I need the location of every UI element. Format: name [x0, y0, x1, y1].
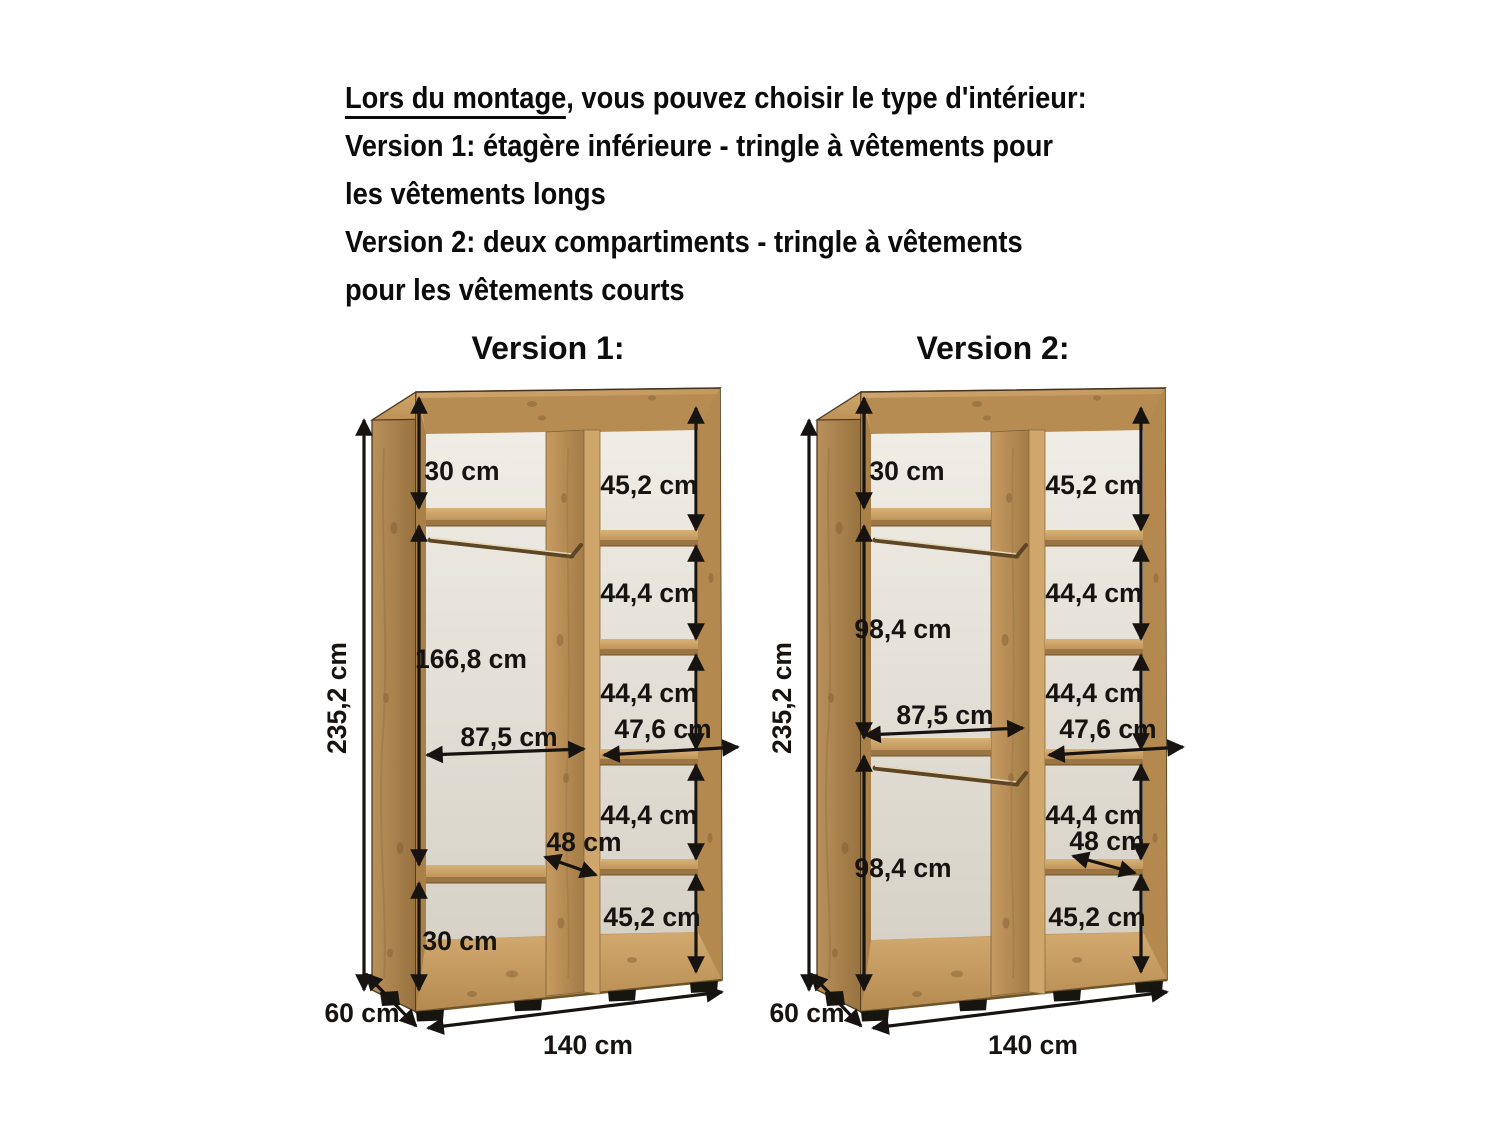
left-shelf-1-top [871, 508, 991, 520]
foot-1 [861, 1010, 889, 1022]
left-shelf-2-top [871, 738, 991, 750]
wood-knot [709, 573, 714, 583]
label-height: 235,2 cm [767, 642, 797, 754]
label-right-section-2: 44,4 cm [600, 578, 697, 608]
header-line-4: Version 2: deux compartiments - tringle … [345, 218, 1087, 266]
label-right-section-3: 44,4 cm [1045, 678, 1142, 708]
left-shelf-1-edge [426, 520, 546, 526]
right-shelf-2-top [1045, 639, 1143, 649]
right-shelf-4-top [600, 859, 698, 869]
ceiling-panel [420, 394, 718, 434]
ceiling-panel [865, 394, 1163, 434]
wardrobe-diagram-version1: 235,2 cm30 cm166,8 cm30 cm87,5 cm48 cm45… [332, 378, 752, 1078]
side-panel [372, 392, 416, 1012]
center-divider-side [991, 430, 1029, 996]
header-line-3: les vêtements longs [345, 170, 1087, 218]
foot-4 [690, 981, 718, 993]
wood-knot [506, 971, 518, 978]
label-width: 140 cm [543, 1030, 633, 1060]
label-right-shelf-depth: 47,6 cm [1059, 714, 1156, 744]
center-divider-side [546, 430, 584, 996]
right-shelf-2-edge [1045, 649, 1143, 655]
wood-knot [1153, 833, 1158, 843]
right-shelf-4-edge [600, 869, 698, 875]
right-shelf-1-top [600, 530, 698, 540]
label-right-section-5: 45,2 cm [603, 902, 700, 932]
right-shelf-3-edge [1045, 759, 1143, 765]
label-right-section-2: 44,4 cm [1045, 578, 1142, 608]
foot-2 [514, 999, 542, 1011]
wood-knot [558, 918, 565, 929]
version1-title: Version 1: [453, 330, 643, 367]
wood-knot [527, 401, 537, 407]
wood-knot [387, 949, 393, 958]
right-shelf-2-top [600, 639, 698, 649]
label-right-section-1: 45,2 cm [1045, 470, 1142, 500]
label-lower-section: 98,4 cm [854, 853, 951, 883]
wood-knot [397, 842, 404, 854]
label-bottom-section: 30 cm [422, 926, 497, 956]
label-top-section: 30 cm [869, 456, 944, 486]
wood-knot [912, 991, 922, 997]
foot-3 [608, 989, 636, 1001]
left-shelf-1-edge [871, 520, 991, 526]
left-shelf-1-top [426, 508, 546, 520]
wardrobe-diagram-version2: 235,2 cm30 cm98,4 cm98,4 cm87,5 cm48 cm4… [777, 378, 1197, 1078]
foot-1 [416, 1010, 444, 1022]
header-line-2: Version 1: étagère inférieure - tringle … [345, 122, 1087, 170]
wood-knot [708, 833, 713, 843]
wood-knot [627, 957, 637, 963]
header-line-5: pour les vêtements courts [345, 266, 1087, 314]
wood-knot [832, 949, 838, 958]
label-upper-section: 98,4 cm [854, 614, 951, 644]
label-right-section-4: 44,4 cm [1045, 800, 1142, 830]
label-right-section-5: 45,2 cm [1048, 902, 1145, 932]
label-right-shelf-depth: 47,6 cm [614, 714, 711, 744]
label-height: 235,2 cm [322, 642, 352, 754]
version2-title: Version 2: [898, 330, 1088, 367]
wood-knot [983, 416, 991, 421]
right-shelf-2-edge [600, 649, 698, 655]
foot-2 [959, 999, 987, 1011]
left-shelf-2-edge [426, 877, 546, 883]
label-shelf-depth: 48 cm [1069, 826, 1144, 856]
wood-knot [836, 522, 843, 534]
wood-knot [557, 634, 564, 646]
wood-knot [1072, 957, 1082, 963]
center-divider-front-edge [584, 430, 600, 994]
wood-knot [1003, 918, 1010, 929]
label-right-section-3: 44,4 cm [600, 678, 697, 708]
right-shelf-1-top [1045, 530, 1143, 540]
wood-knot [648, 396, 656, 401]
label-top-section: 30 cm [424, 456, 499, 486]
wood-knot [1093, 396, 1101, 401]
page: Lors du montage, vous pouvez choisir le … [0, 0, 1500, 1125]
left-shelf-2-edge [871, 750, 991, 756]
center-divider-front-edge [1029, 430, 1045, 994]
side-panel [817, 392, 861, 1012]
label-right-section-1: 45,2 cm [600, 470, 697, 500]
wood-knot [842, 842, 849, 854]
label-width: 140 cm [988, 1030, 1078, 1060]
wood-knot [1006, 493, 1012, 503]
right-shelf-3-edge [600, 759, 698, 765]
label-interior-width: 87,5 cm [460, 722, 557, 752]
label-right-section-4: 44,4 cm [600, 800, 697, 830]
header-line1-rest: , vous pouvez choisir le type d'intérieu… [566, 80, 1086, 115]
label-depth: 60 cm [769, 998, 844, 1028]
wood-knot [1154, 573, 1159, 583]
right-wall-inner [1143, 388, 1167, 980]
right-shelf-1-edge [600, 540, 698, 546]
left-shelf-2-top [426, 865, 546, 877]
header-line1-underlined: Lors du montage [345, 80, 566, 119]
label-main-section: 166,8 cm [415, 644, 527, 674]
wood-knot [561, 493, 567, 503]
header-text: Lors du montage, vous pouvez choisir le … [345, 74, 1087, 314]
label-interior-width: 87,5 cm [896, 700, 993, 730]
foot-4 [1135, 981, 1163, 993]
wood-knot [1002, 634, 1009, 646]
right-shelf-1-edge [1045, 540, 1143, 546]
label-depth: 60 cm [324, 998, 399, 1028]
wood-knot [467, 991, 477, 997]
wood-knot [951, 971, 963, 978]
right-wall-inner [698, 388, 722, 980]
header-line-1: Lors du montage, vous pouvez choisir le … [345, 74, 1087, 122]
foot-3 [1053, 989, 1081, 1001]
wood-knot [391, 522, 398, 534]
wood-knot [538, 416, 546, 421]
label-shelf-depth: 48 cm [546, 827, 621, 857]
wood-knot [972, 401, 982, 407]
